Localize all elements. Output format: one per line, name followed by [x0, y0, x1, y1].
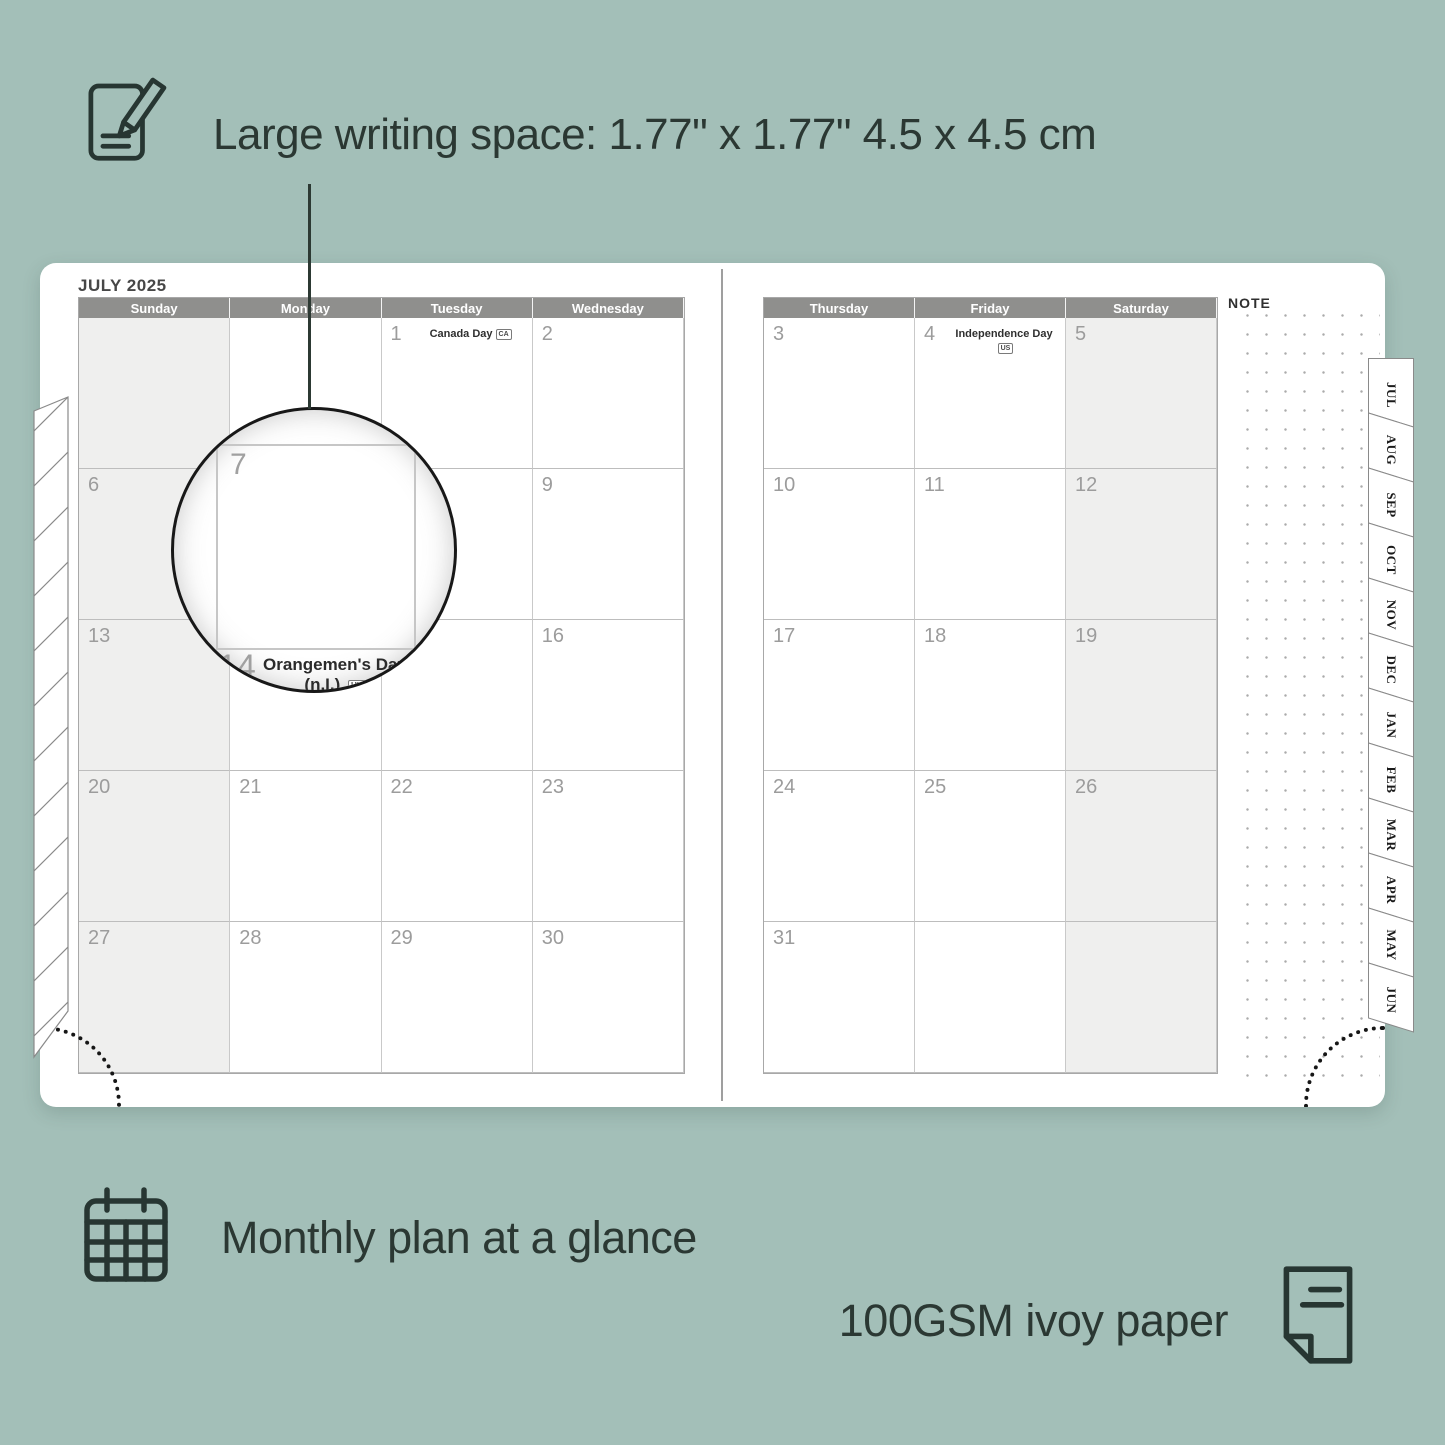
month-tab-label: FEB: [1384, 767, 1399, 794]
month-tab-label: APR: [1384, 876, 1399, 904]
month-tab-label: SEP: [1384, 492, 1399, 517]
calendar-cell: [79, 318, 230, 469]
paper-caption: 100GSM ivoy paper: [839, 1295, 1228, 1347]
day-header: Sunday: [79, 298, 230, 318]
month-tab-label: DEC: [1384, 656, 1399, 685]
magnified-holiday: Orangemen's Day (n.I.) UK: [240, 655, 430, 693]
month-tab-label: NOV: [1384, 600, 1399, 631]
monthly-caption: Monthly plan at a glance: [221, 1212, 697, 1264]
day-header: Wednesday: [533, 298, 684, 318]
day-number: 3: [773, 323, 784, 346]
calendar-icon: [80, 1186, 172, 1286]
day-number: 9: [542, 474, 553, 497]
calendar-cell: 29: [382, 922, 533, 1073]
magnified-holiday-line2: (n.I.): [304, 675, 340, 693]
magnified-holiday-line1: Orangemen's Day: [263, 655, 407, 674]
calendar-cell: 16: [533, 620, 684, 771]
pencil-note-icon: [84, 68, 170, 166]
day-number: 4: [924, 323, 935, 346]
day-number: 16: [542, 625, 564, 648]
calendar-cell: 25: [915, 771, 1066, 922]
holiday-label: Canada DayCA: [414, 328, 528, 342]
day-header: Monday: [230, 298, 381, 318]
magnifier-circle: 7 14 Orangemen's Day (n.I.) UK: [171, 407, 457, 693]
month-tab-label: JUN: [1384, 987, 1399, 1014]
month-tab-label: JAN: [1384, 712, 1399, 739]
month-tab-label: OCT: [1384, 545, 1399, 575]
month-tab-label: MAY: [1384, 929, 1399, 960]
day-number: 13: [88, 625, 110, 648]
day-number: 5: [1075, 323, 1086, 346]
day-number: 10: [773, 474, 795, 497]
calendar-cell: 4Independence DayUS: [915, 318, 1066, 469]
calendar-cell: 20: [79, 771, 230, 922]
month-tab-label: MAR: [1384, 819, 1399, 852]
day-number: 1: [391, 323, 402, 346]
spine-divider: [721, 269, 723, 1101]
day-number: 22: [391, 776, 413, 799]
right-month-grid: ThursdayFridaySaturday34Independence Day…: [763, 297, 1218, 1074]
calendar-cell: 5: [1066, 318, 1217, 469]
day-number: 21: [239, 776, 261, 799]
day-number: 29: [391, 927, 413, 950]
flag-badge: US: [998, 343, 1014, 354]
calendar-cell: 30: [533, 922, 684, 1073]
day-header: Saturday: [1066, 298, 1217, 318]
calendar-cell: 19: [1066, 620, 1217, 771]
calendar-cell: 27: [79, 922, 230, 1073]
holiday-label: Independence DayUS: [947, 328, 1061, 356]
planner-spread: JULY 2025 SundayMondayTuesdayWednesday1C…: [40, 263, 1385, 1107]
day-number: 30: [542, 927, 564, 950]
day-header: Tuesday: [382, 298, 533, 318]
day-number: 12: [1075, 474, 1097, 497]
day-number: 23: [542, 776, 564, 799]
month-tab-label: JUL: [1384, 382, 1399, 408]
calendar-cell: 12: [1066, 469, 1217, 620]
paper-sheet-icon: [1272, 1262, 1364, 1368]
calendar-cell: 31: [764, 922, 915, 1073]
day-number: 31: [773, 927, 795, 950]
callout-connector-line: [308, 184, 311, 409]
day-number: 19: [1075, 625, 1097, 648]
page-edge-hatch-strip: [33, 395, 69, 1063]
note-dot-grid: [1234, 299, 1380, 1089]
month-tab-rail: JULAUGSEPOCTNOVDECJANFEBMARAPRMAYJUN: [1368, 358, 1414, 1043]
calendar-cell: 28: [230, 922, 381, 1073]
top-caption: Large writing space: 1.77" x 1.77" 4.5 x…: [213, 110, 1096, 160]
month-tab-label: AUG: [1384, 435, 1399, 465]
calendar-cell: 26: [1066, 771, 1217, 922]
calendar-cell: 17: [764, 620, 915, 771]
calendar-cell: 23: [533, 771, 684, 922]
magnified-day-number: 7: [230, 448, 247, 482]
month-title: JULY 2025: [78, 276, 167, 296]
day-number: 6: [88, 474, 99, 497]
day-header: Thursday: [764, 298, 915, 318]
day-number: 11: [924, 474, 945, 497]
day-number: 26: [1075, 776, 1097, 799]
calendar-cell: [915, 922, 1066, 1073]
calendar-cell: 2: [533, 318, 684, 469]
calendar-cell: 3: [764, 318, 915, 469]
day-number: 18: [924, 625, 946, 648]
day-header: Friday: [915, 298, 1066, 318]
calendar-cell: 24: [764, 771, 915, 922]
day-number: 24: [773, 776, 795, 799]
day-number: 28: [239, 927, 261, 950]
calendar-cell: 18: [915, 620, 1066, 771]
day-number: 20: [88, 776, 110, 799]
day-number: 2: [542, 323, 553, 346]
note-label: NOTE: [1228, 295, 1277, 311]
calendar-cell: 21: [230, 771, 381, 922]
calendar-cell: [1066, 922, 1217, 1073]
day-number: 25: [924, 776, 946, 799]
calendar-cell: 9: [533, 469, 684, 620]
day-number: 17: [773, 625, 795, 648]
day-number: 27: [88, 927, 110, 950]
calendar-cell: 22: [382, 771, 533, 922]
calendar-cell: 10: [764, 469, 915, 620]
flag-badge: CA: [496, 329, 512, 340]
calendar-cell: 11: [915, 469, 1066, 620]
